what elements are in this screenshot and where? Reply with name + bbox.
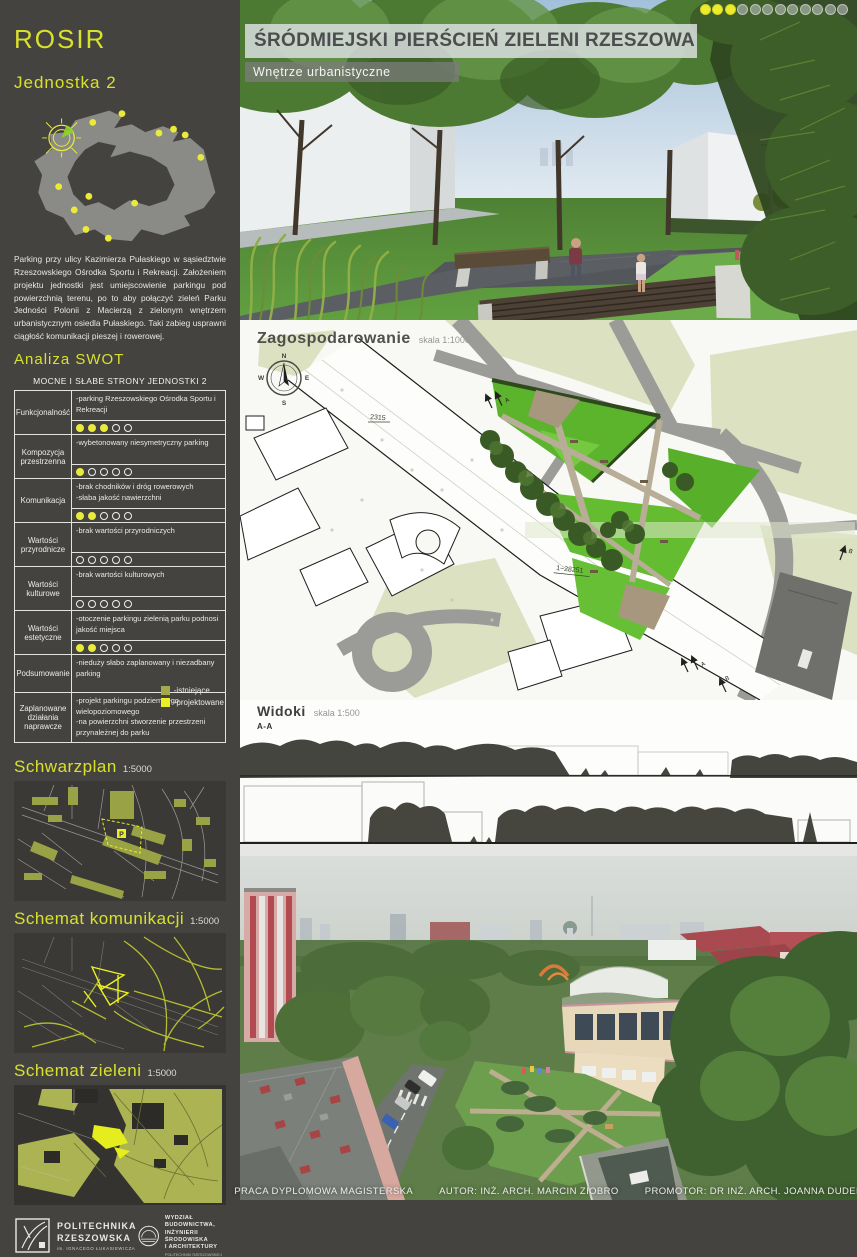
schwarzplan-map: P: [14, 781, 226, 901]
rating-dot: [124, 512, 132, 520]
compass-south: S: [282, 400, 287, 407]
rating-dot: [76, 644, 84, 652]
dimension-label: 2315: [370, 414, 386, 422]
compass-east: E: [305, 375, 310, 382]
legend-item-existing: -istniejące: [161, 686, 224, 695]
swot-row: Komunikacja -brak chodników i dróg rower…: [15, 479, 225, 523]
rating-dot: [88, 600, 96, 608]
widoki-scale: skala 1:500: [314, 708, 360, 718]
legend-designed-label: -projektowane: [174, 698, 224, 707]
swot-rating: [72, 640, 225, 654]
rating-dot: [124, 556, 132, 564]
greenery-map: [14, 1085, 226, 1205]
plan-title: Zagospodarowanie: [257, 330, 411, 348]
widoki-title: Widoki: [257, 703, 306, 719]
rating-dot: [76, 468, 84, 476]
rating-dot: [76, 556, 84, 564]
map-legend: -istniejące -projektowane: [161, 686, 224, 707]
compass-north: N: [282, 353, 287, 360]
university-logo-icon: [14, 1216, 52, 1256]
page-subtitle: Wnętrze urbanistyczne: [253, 65, 391, 79]
communication-scale: 1:5000: [190, 916, 219, 927]
footer-author: AUTOR: INŻ. ARCH. MARCIN ZIOBRO: [439, 1186, 619, 1197]
site-plan-illustration: N E S W A A B B 2315 1−28251: [240, 320, 857, 700]
swot-rating: [72, 508, 225, 522]
page-dots: [700, 4, 849, 15]
swot-category: Zaplanowane działania naprawcze: [15, 693, 72, 742]
schwarzplan-heading: Schwarzplan 1:5000: [14, 757, 226, 777]
unit-title: Jednostka 2: [14, 73, 226, 93]
swot-table-title: MOCNE I SŁABE STRONY JEDNOSTKI 2: [14, 376, 226, 386]
rating-dot: [725, 4, 736, 15]
rating-dot: [88, 512, 96, 520]
rating-dot: [100, 424, 108, 432]
plan-heading: Zagospodarowanie skala 1:1000: [257, 330, 470, 348]
rating-dot: [76, 424, 84, 432]
rating-dot: [100, 556, 108, 564]
swot-rating: [72, 464, 225, 478]
section-b-elevation: [240, 778, 857, 856]
rating-dot: [700, 4, 711, 15]
communication-heading: Schemat komunikacji 1:5000: [14, 909, 226, 929]
rating-dot: [737, 4, 748, 15]
rating-dot: [88, 556, 96, 564]
rating-dot: [124, 468, 132, 476]
swot-row: Funkcjonalność -parking Rzeszowskiego Oś…: [15, 391, 225, 435]
university-logo-subtitle: im. IGNACEGO ŁUKASIEWICZA: [57, 1246, 137, 1251]
rating-dot: [124, 600, 132, 608]
swot-category: Wartości kulturowe: [15, 567, 72, 610]
rating-dot: [112, 468, 120, 476]
section-a-elevation: [240, 732, 857, 778]
swot-items: -brak wartości przyrodniczych: [72, 523, 225, 552]
swot-items: -otoczenie parkingu zielenią parku podno…: [72, 611, 225, 640]
faculty-logo: WYDZIAŁBUDOWNICTWA,INŻYNIERII ŚRODOWISKA…: [137, 1215, 227, 1257]
rating-dot: [124, 424, 132, 432]
rating-dot: [100, 644, 108, 652]
plan-scale: skala 1:1000: [419, 335, 470, 345]
faculty-logo-icon: [137, 1220, 160, 1252]
rating-dot: [712, 4, 723, 15]
swot-category: Funkcjonalność: [15, 391, 72, 434]
faculty-logo-subtitle: POLITECHNIKI RZESZOWSKIEJ: [165, 1253, 226, 1257]
rating-dot: [787, 4, 798, 15]
rating-dot: [812, 4, 823, 15]
rating-dot: [100, 512, 108, 520]
rating-dot: [750, 4, 761, 15]
rating-dot: [825, 4, 836, 15]
greenery-heading: Schemat zieleni 1:5000: [14, 1061, 226, 1081]
page-title: ŚRÓDMIEJSKI PIERŚCIEŃ ZIELENI RZESZOWA: [254, 30, 695, 52]
rating-dot: [76, 600, 84, 608]
greenery-title: Schemat zieleni: [14, 1061, 142, 1081]
swot-category: Komunikacja: [15, 479, 72, 522]
swot-category: Kompozycja przestrzenna: [15, 435, 72, 478]
schwarzplan-title: Schwarzplan: [14, 757, 117, 777]
parking-letter: P: [119, 832, 124, 839]
swot-category: Wartości estetyczne: [15, 611, 72, 654]
swot-rating: [72, 552, 225, 566]
swot-items: -brak chodników i dróg rowerowych -słaba…: [72, 479, 225, 508]
sidebar: ROSIR Jednostka 2 Parking przy ulicy Kaz…: [0, 0, 240, 1200]
rating-dot: [112, 424, 120, 432]
rating-dot: [112, 512, 120, 520]
section-a-label: A-A: [257, 722, 273, 731]
rating-dot: [112, 644, 120, 652]
rating-dot: [762, 4, 773, 15]
rating-dot: [112, 556, 120, 564]
swot-items: -parking Rzeszowskiego Ośrodka Sportu i …: [72, 391, 225, 420]
greenery-scale: 1:5000: [148, 1068, 177, 1079]
swot-items: -brak wartości kulturowych: [72, 567, 225, 596]
page-subtitle-band: Wnętrze urbanistyczne: [245, 62, 459, 82]
widoki-heading: Widoki skala 1:500: [257, 703, 360, 719]
legend-item-designed: -projektowane: [161, 698, 224, 707]
existing-swatch: [161, 686, 170, 695]
swot-rating: [72, 596, 225, 610]
sections-panel: Widoki skala 1:500 A-A B-B: [240, 700, 857, 856]
university-logo: POLITECHNIKARZESZOWSKA im. IGNACEGO ŁUKA…: [14, 1216, 137, 1256]
communication-map: [14, 933, 226, 1053]
designed-swatch: [161, 698, 170, 707]
footer-work-type: PRACA DYPLOMOWA MAGISTERSKA: [234, 1186, 413, 1197]
rating-dot: [837, 4, 848, 15]
rating-dot: [775, 4, 786, 15]
rating-dot: [124, 644, 132, 652]
rating-dot: [76, 512, 84, 520]
rating-dot: [88, 644, 96, 652]
swot-category: Podsumowanie: [15, 655, 72, 692]
swot-row: Kompozycja przestrzenna -wybetonowany ni…: [15, 435, 225, 479]
legend-existing-label: -istniejące: [174, 686, 210, 695]
page-title-band: ŚRÓDMIEJSKI PIERŚCIEŃ ZIELENI RZESZOWA: [245, 24, 697, 58]
rosir-logo: ROSIR: [14, 24, 226, 55]
communication-title: Schemat komunikacji: [14, 909, 184, 929]
footer-credits: PRACA DYPLOMOWA MAGISTERSKA AUTOR: INŻ. …: [240, 1186, 857, 1197]
swot-category: Wartości przyrodnicze: [15, 523, 72, 566]
poster-main: ŚRÓDMIEJSKI PIERŚCIEŃ ZIELENI RZESZOWA W…: [240, 0, 857, 1200]
rating-dot: [100, 468, 108, 476]
rating-dot: [112, 600, 120, 608]
footer-promoter: PROMOTOR: DR INŻ. ARCH. JOANNA DUDEK: [645, 1186, 857, 1197]
compass-west: W: [258, 375, 265, 382]
rating-dot: [800, 4, 811, 15]
swot-row: Wartości estetyczne -otoczenie parkingu …: [15, 611, 225, 655]
rating-dot: [88, 424, 96, 432]
rating-dot: [88, 468, 96, 476]
aerial-photo-illustration: [240, 856, 857, 1200]
schwarzplan-scale: 1:5000: [123, 764, 152, 775]
swot-row: Wartości przyrodnicze -brak wartości prz…: [15, 523, 225, 567]
rating-dot: [100, 600, 108, 608]
unit-location-diagram: [14, 99, 226, 245]
swot-items: -wybetonowany niesymetryczny parking: [72, 435, 225, 464]
swot-row: Wartości kulturowe -brak wartości kultur…: [15, 567, 225, 611]
swot-heading: Analiza SWOT: [14, 351, 226, 368]
footer-logos: POLITECHNIKARZESZOWSKA im. IGNACEGO ŁUKA…: [14, 1215, 226, 1257]
project-description: Parking przy ulicy Kazimierza Pułaskiego…: [14, 253, 226, 343]
swot-rating: [72, 420, 225, 434]
